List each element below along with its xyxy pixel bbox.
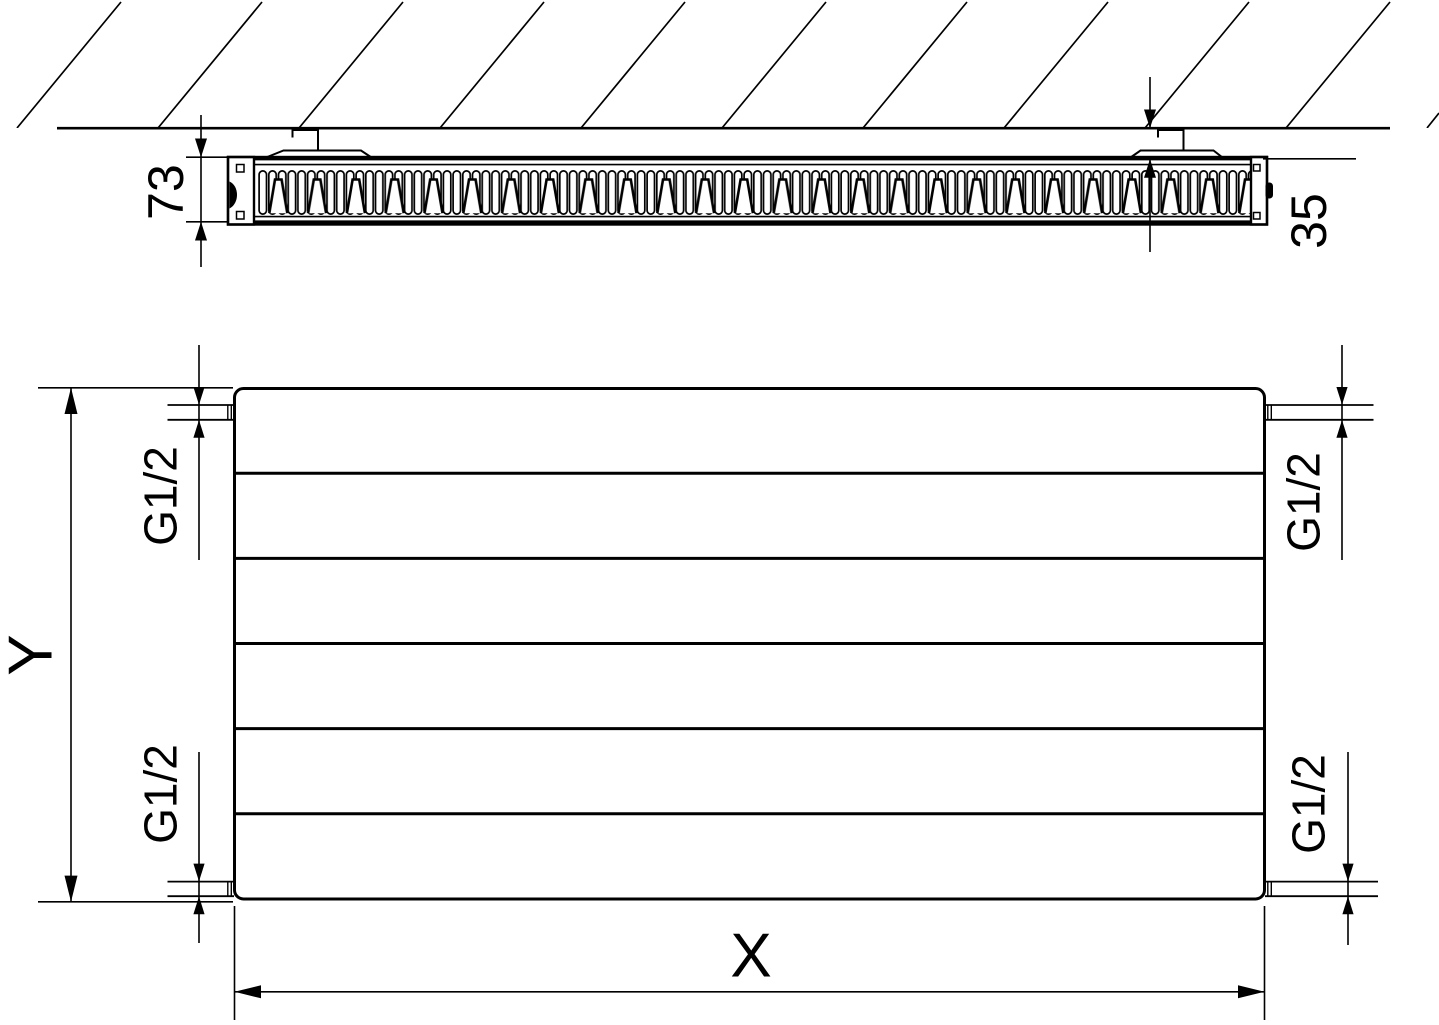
wall-distance-label: 35	[1281, 193, 1337, 249]
connection-stub-bottom-right	[1265, 882, 1378, 897]
dim-height-y: Y	[0, 388, 233, 902]
end-cap-right	[1251, 157, 1273, 225]
connection-stub-bottom-left	[168, 882, 235, 897]
thread-label-top-left: G1/2	[135, 446, 187, 546]
height-label: Y	[0, 634, 66, 675]
dim-width-x: X	[235, 906, 1265, 1020]
mounting-bracket-left	[266, 130, 372, 158]
radiator-front-view	[168, 389, 1379, 900]
radiator-top-view	[228, 130, 1273, 225]
width-label: X	[730, 922, 771, 991]
wall-hatching	[17, 2, 1439, 128]
end-cap-left	[228, 157, 254, 225]
dim-depth-73: 73	[138, 115, 229, 267]
connection-stub-top-right	[1265, 405, 1374, 420]
dim-thread-bottom-right: G1/2	[1283, 752, 1354, 945]
depth-label: 73	[138, 164, 194, 220]
dim-thread-bottom-left: G1/2	[135, 744, 205, 943]
radiator-technical-drawing: 73 35	[0, 0, 1439, 1025]
thread-label-bottom-right: G1/2	[1283, 754, 1335, 854]
dim-thread-top-left: G1/2	[135, 345, 205, 560]
convector-fins	[258, 170, 1251, 215]
thread-label-top-right: G1/2	[1278, 452, 1330, 552]
thread-label-bottom-left: G1/2	[135, 744, 187, 844]
connection-stub-top-left	[168, 405, 235, 420]
dim-thread-top-right: G1/2	[1278, 345, 1348, 560]
mounting-bracket-right	[1131, 130, 1223, 158]
